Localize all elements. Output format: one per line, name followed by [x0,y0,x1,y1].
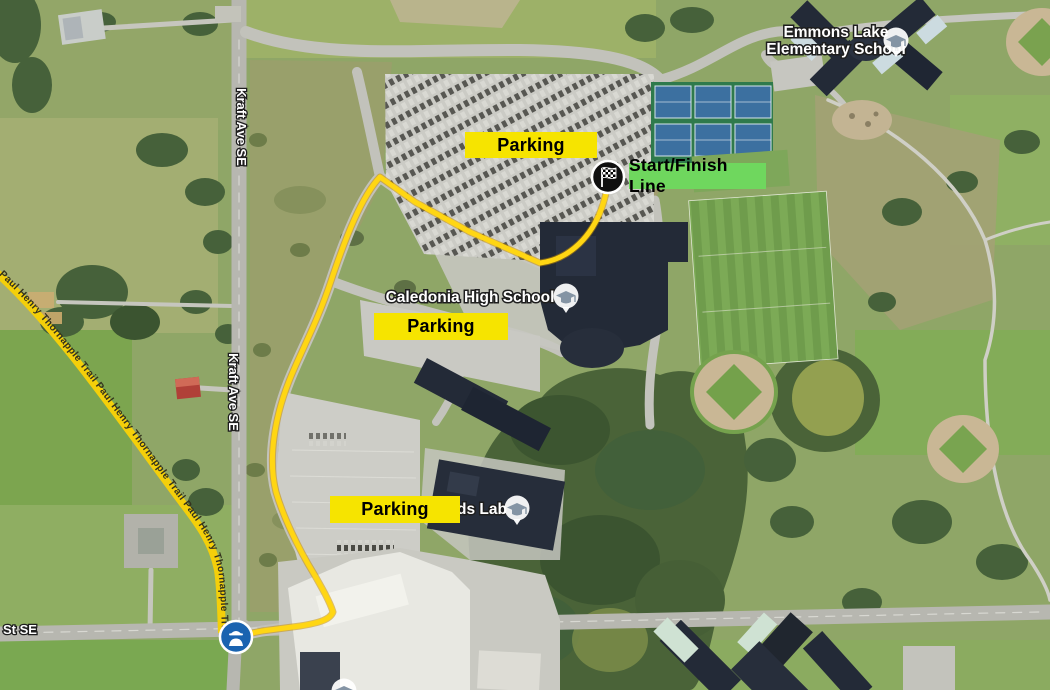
baseball-field-2 [927,415,999,483]
parking-annotation-south: Parking [330,496,460,523]
elementary-school-label-line1: Emmons Lake [783,24,888,41]
playground [832,100,892,140]
kraft-ave-label-south: Kraft Ave SE [226,353,241,431]
satellite-map[interactable]: Paul Henry Thornapple Trail Paul Henry T… [0,0,1050,690]
start-finish-flag-marker[interactable] [592,161,624,193]
street-label: St SE [3,622,37,637]
kraft-ave-label-north: Kraft Ave SE [234,88,249,166]
baseball-field-1 [690,350,778,434]
parking-annotation-north: Parking [465,132,597,158]
parking-annotation-middle: Parking [374,313,508,340]
high-school-label: Caledonia High School [386,289,555,306]
map-canvas: Paul Henry Thornapple Trail Paul Henry T… [0,0,1050,690]
start-finish-annotation: Start/Finish Line [629,163,766,189]
crossing-guard-marker[interactable] [220,621,252,653]
lab-label: ds Lab [457,501,507,518]
